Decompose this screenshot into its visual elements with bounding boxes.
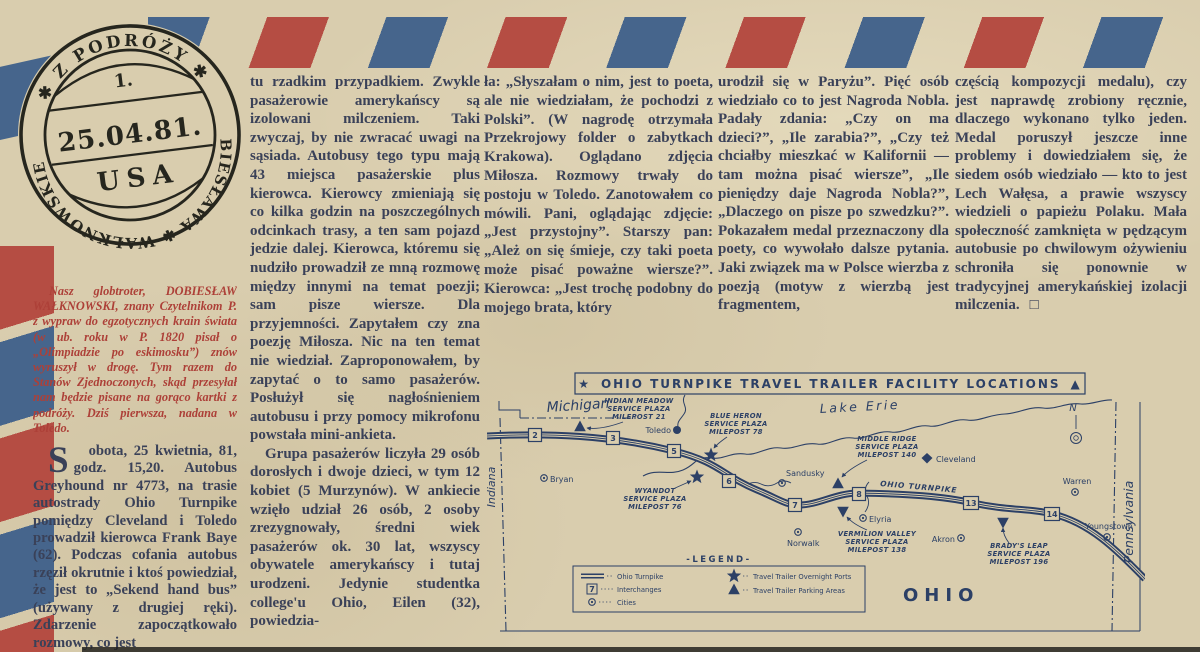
maumee-river — [678, 395, 686, 428]
column4-paragraph: urodził się w Paryżu”. Pięć osób wiedzia… — [718, 73, 949, 315]
legend-city-icon — [589, 599, 596, 606]
legend-box: -LEGEND- Ohio Turnpike 7 Interchanges Ci… — [573, 555, 865, 612]
postmark-stamp: ✱ Z PODRÓŻY ✱ DOBIESŁAWA ✱ WAŁKNOWSKIEGO… — [6, 0, 250, 270]
svg-text:3: 3 — [610, 434, 616, 443]
compass-icon: N — [1069, 403, 1081, 444]
svg-text:5: 5 — [671, 447, 677, 456]
svg-text:SERVICE PLAZA: SERVICE PLAZA — [704, 420, 767, 428]
svg-text:MILEPOST 78: MILEPOST 78 — [709, 428, 763, 436]
svg-text:MILEPOST 140: MILEPOST 140 — [858, 451, 917, 459]
legend-triangle-icon — [728, 584, 740, 595]
star-icon: ★ — [578, 377, 591, 391]
legend-item: Travel Trailer Overnight Ports — [752, 573, 852, 581]
legend-interchange-icon: 7 — [587, 584, 597, 594]
svg-text:Elyria: Elyria — [869, 515, 892, 524]
svg-text:BRADY'S LEAP: BRADY'S LEAP — [990, 542, 1048, 550]
parking-triangle-icon — [832, 478, 844, 489]
airmail-stripes-top — [148, 17, 1200, 68]
svg-text:14: 14 — [1046, 510, 1058, 519]
svg-text:SERVICE PLAZA: SERVICE PLAZA — [845, 538, 908, 546]
svg-text:Toledo: Toledo — [644, 426, 671, 435]
pennsylvania-border — [1112, 402, 1116, 631]
state-border-corner — [499, 401, 520, 418]
legend-item: Travel Trailer Parking Areas — [752, 587, 845, 595]
svg-text:SERVICE PLAZA: SERVICE PLAZA — [855, 443, 918, 451]
legend-title: -LEGEND- — [686, 555, 751, 565]
svg-text:7: 7 — [589, 585, 595, 594]
newspaper-page: { "stamp": { "ring_top": "✱ Z PODRÓŻY ✱"… — [0, 0, 1200, 652]
svg-text:13: 13 — [965, 499, 976, 508]
state-label-indiana: Indiana — [487, 466, 498, 507]
svg-text:N: N — [1069, 403, 1077, 414]
article-column-2: tu rzadkim przypadkiem. Zwykle pasażerow… — [250, 73, 480, 650]
svg-text:8: 8 — [856, 490, 862, 499]
column1-paragraph: Sobota, 25 kwietnia, 81, godz. 15,20. Au… — [33, 443, 237, 650]
svg-text:Warren: Warren — [1063, 477, 1092, 486]
legend-star-icon — [727, 569, 741, 583]
article-end-mark: □ — [1030, 297, 1039, 313]
parking-triangle-icon — [574, 421, 586, 432]
parking-triangle-icon — [837, 507, 849, 518]
article-column-4: urodził się w Paryżu”. Pięć osób wiedzia… — [718, 73, 949, 367]
svg-text:Bryan: Bryan — [550, 475, 573, 484]
state-label-pennsylvania: Pennsylvania — [1121, 481, 1136, 564]
parking-triangle-icon — [997, 518, 1009, 529]
legend-item: Ohio Turnpike — [617, 573, 663, 581]
svg-text:MILEPOST 196: MILEPOST 196 — [990, 558, 1049, 566]
svg-text:Cleveland: Cleveland — [936, 455, 976, 464]
svg-text:MIDDLE RIDGE: MIDDLE RIDGE — [857, 435, 916, 443]
svg-text:7: 7 — [792, 501, 798, 510]
svg-text:INDIAN MEADOW: INDIAN MEADOW — [604, 397, 673, 405]
svg-text:MILEPOST 21: MILEPOST 21 — [612, 413, 666, 421]
stamp-number: 1. — [113, 69, 134, 92]
indiana-border — [500, 418, 506, 631]
svg-text:VERMILION VALLEY: VERMILION VALLEY — [838, 530, 917, 538]
svg-text:SERVICE PLAZA: SERVICE PLAZA — [623, 495, 686, 503]
svg-text:Sandusky: Sandusky — [786, 469, 825, 478]
overnight-star-icon — [690, 470, 704, 484]
column5-paragraph: częścią kompozycji medalu), czy jest nap… — [955, 74, 1187, 313]
svg-text:Akron: Akron — [932, 535, 955, 544]
svg-text:Norwalk: Norwalk — [787, 539, 820, 548]
article-column-1: Nasz globtroter, DOBIESŁAW WAŁKNOWSKI, z… — [33, 284, 237, 650]
column3-paragraph: ła: „Słyszałam o nim, jest to poeta, ale… — [484, 73, 713, 317]
article-column-3: ła: „Słyszałam o nim, jest to poeta, ale… — [484, 73, 713, 367]
column2-paragraph-1: tu rzadkim przypadkiem. Zwykle pasażerow… — [250, 73, 480, 445]
svg-text:BLUE HERON: BLUE HERON — [710, 412, 762, 420]
ohio-turnpike-map: ★OHIO TURNPIKE TRAVEL TRAILER FACILITY L… — [487, 372, 1145, 645]
triangle-icon: ▲ — [1071, 377, 1082, 391]
svg-text:MILEPOST 138: MILEPOST 138 — [848, 546, 907, 554]
map-title: ★OHIO TURNPIKE TRAVEL TRAILER FACILITY L… — [578, 377, 1082, 391]
svg-text:SERVICE PLAZA: SERVICE PLAZA — [607, 405, 670, 413]
intro-paragraph: Nasz globtroter, DOBIESŁAW WAŁKNOWSKI, z… — [33, 284, 237, 436]
page-bottom-edge — [82, 647, 1200, 652]
state-label-michigan: Michigan — [546, 396, 610, 416]
column2-paragraph-2: Grupa pasażerów liczyła 29 osób dorosłyc… — [250, 445, 480, 631]
state-label-ohio: OHIO — [903, 585, 979, 606]
svg-text:SERVICE PLAZA: SERVICE PLAZA — [987, 550, 1050, 558]
svg-text:WYANDOT: WYANDOT — [635, 487, 677, 495]
svg-text:6: 6 — [726, 477, 732, 486]
legend-item: Cities — [617, 599, 636, 607]
svg-text:2: 2 — [532, 431, 538, 440]
lake-erie-label: Lake Erie — [819, 397, 900, 416]
svg-text:MILEPOST 76: MILEPOST 76 — [628, 503, 682, 511]
legend-item: Interchanges — [617, 586, 662, 594]
article-column-5: częścią kompozycji medalu), czy jest nap… — [955, 73, 1187, 369]
